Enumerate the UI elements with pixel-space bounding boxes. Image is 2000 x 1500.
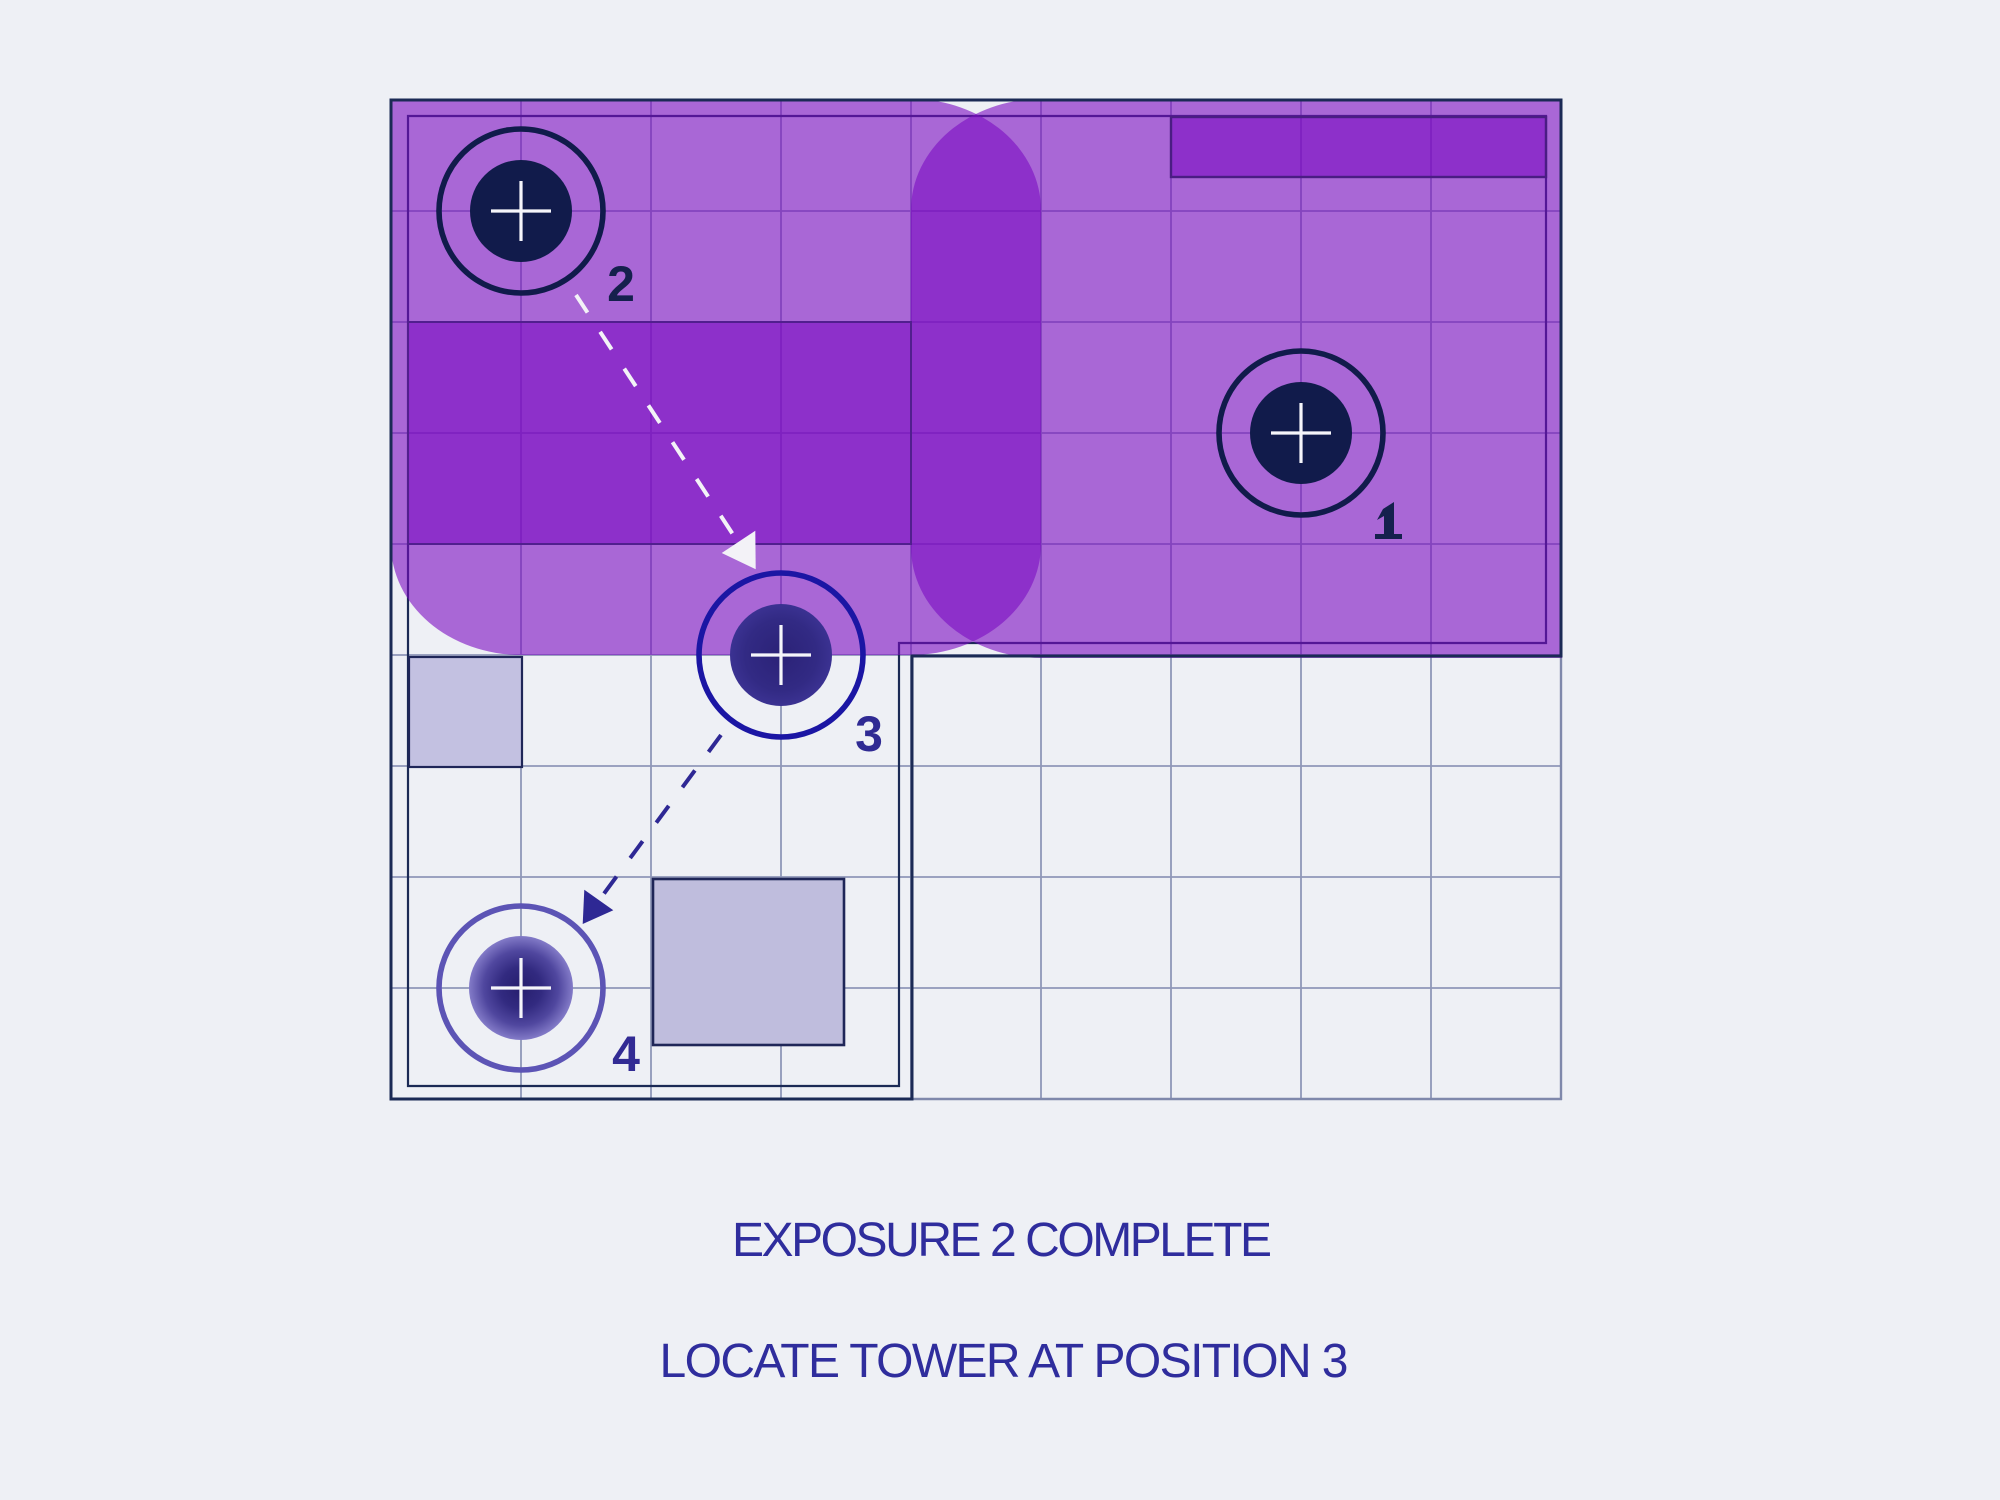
svg-text:2: 2	[607, 256, 635, 312]
svg-text:3: 3	[855, 706, 883, 762]
svg-text:4: 4	[612, 1026, 640, 1082]
svg-text:EXPOSURE 2 COMPLETE: EXPOSURE 2 COMPLETE	[732, 1214, 1272, 1267]
svg-text:LOCATE TOWER AT POSITION 3: LOCATE TOWER AT POSITION 3	[660, 1335, 1349, 1388]
